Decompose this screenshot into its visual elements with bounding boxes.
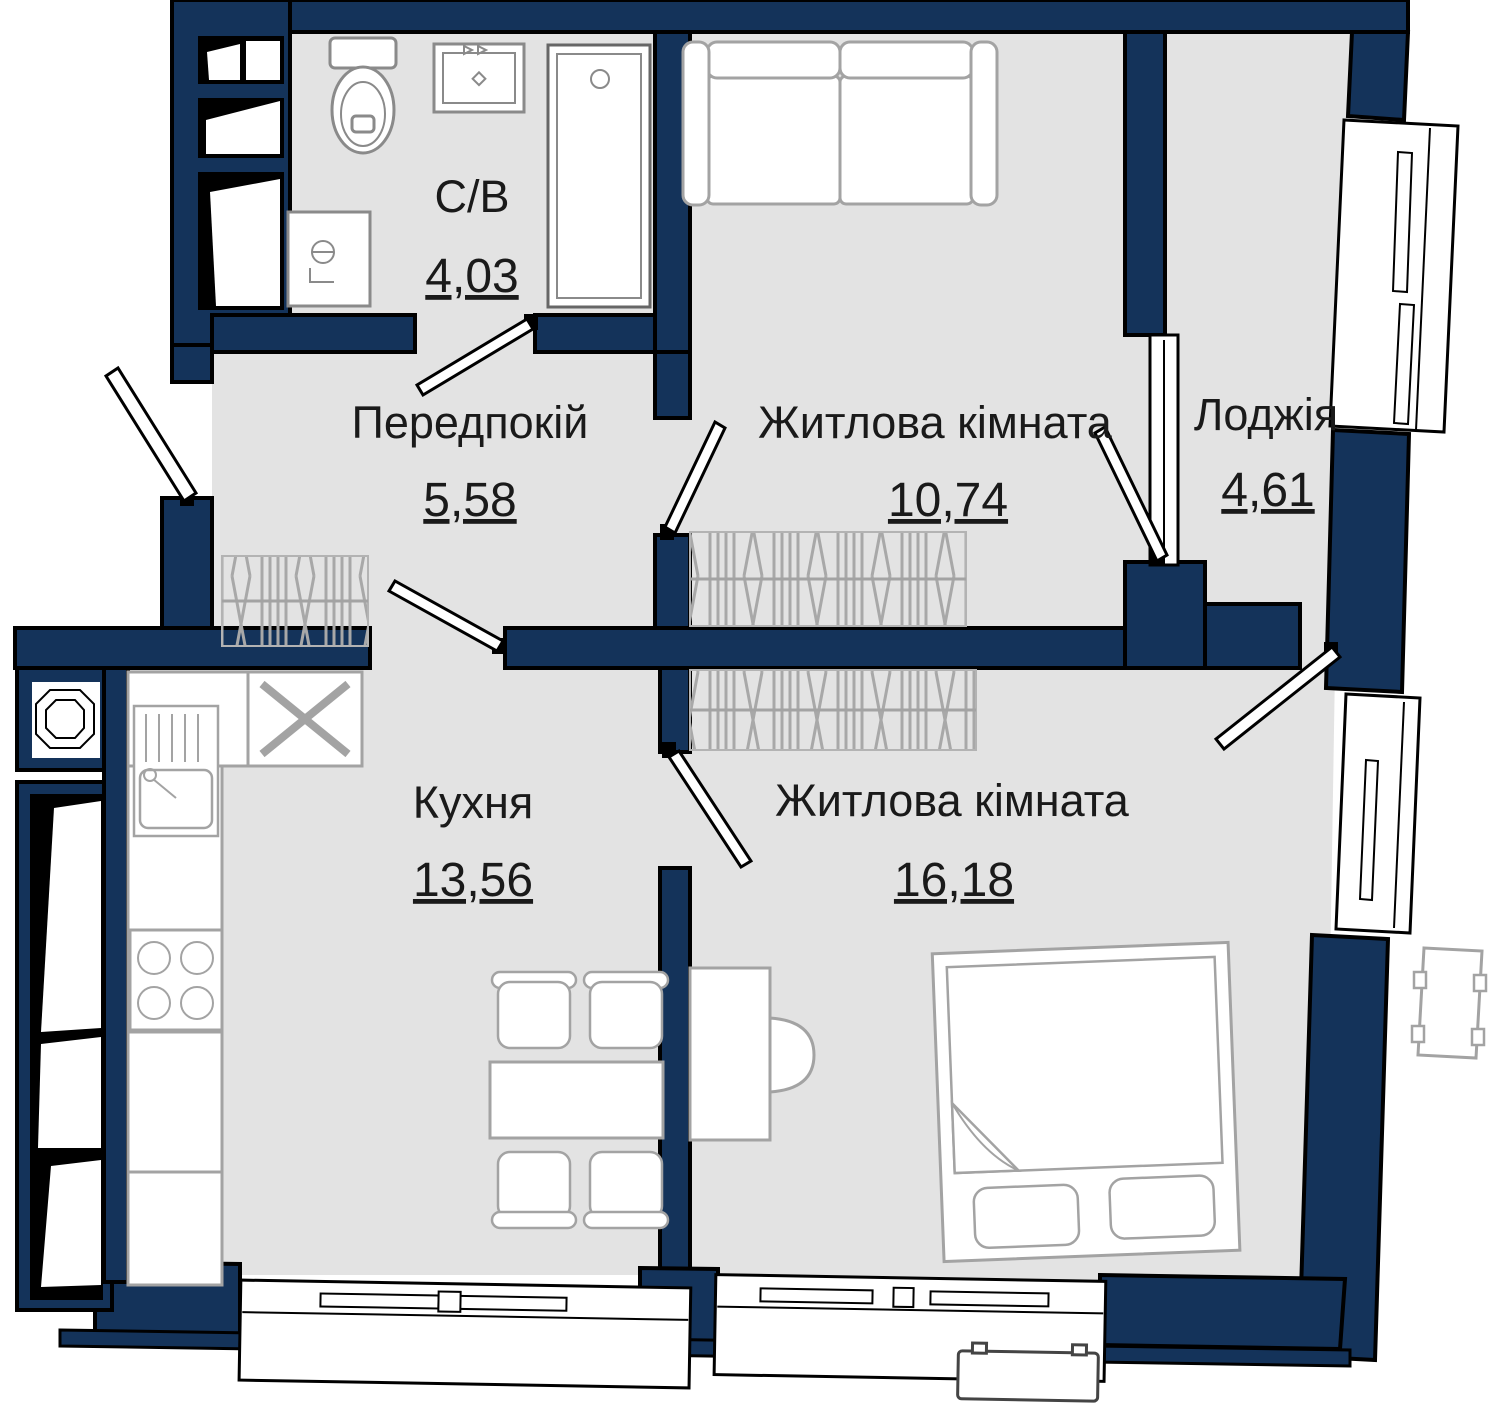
loggia-area: 4,61 <box>1221 464 1314 517</box>
entrance-door-icon <box>106 368 196 506</box>
shower-icon <box>548 45 650 307</box>
living-room-1-area: 10,74 <box>888 474 1008 527</box>
kitchen-left-wall <box>104 668 128 1282</box>
ac-bracket-icon <box>1412 948 1486 1058</box>
kitchen-label: Кухня <box>413 777 533 828</box>
living-room-1-label: Житлова кімната <box>758 397 1113 448</box>
central-wall-right <box>505 628 1205 668</box>
loggia-floor <box>1165 32 1356 604</box>
kitchen-window-icon <box>239 1280 691 1388</box>
toilet-icon <box>330 38 396 153</box>
top-wall <box>172 0 1408 32</box>
bathroom-sink-icon <box>434 44 524 112</box>
living1-wardrobe-icon <box>690 532 966 626</box>
bathroom-label: С/В <box>434 171 509 222</box>
loggia-bottom-wall <box>1205 604 1300 668</box>
loggia-window-icon <box>1330 120 1458 432</box>
floor-plan: С/В 4,03 Передпокій 5,58 Житлова кімната… <box>0 0 1496 1407</box>
ac-unit-icon <box>958 1343 1099 1401</box>
washing-machine-icon <box>288 212 370 306</box>
living1-loggia-wall <box>1125 32 1165 335</box>
hallway-wardrobe-icon <box>222 556 368 646</box>
stove-icon <box>130 930 222 1030</box>
dining-table-icon <box>490 1062 663 1138</box>
sofa-icon <box>683 42 997 205</box>
kitchen-sink-icon <box>134 706 218 836</box>
desk-icon <box>690 968 770 1140</box>
bedroom-wardrobe-icon <box>690 670 976 750</box>
vent-shaft-icon <box>198 36 284 310</box>
hallway-area: 5,58 <box>423 474 516 527</box>
bed-icon <box>932 942 1240 1261</box>
bedroom-side-window-icon <box>1336 694 1420 933</box>
living-room-2-area: 16,18 <box>894 854 1014 907</box>
kitchen-area: 13,56 <box>413 854 533 907</box>
bathroom-area: 4,03 <box>425 250 518 303</box>
loggia-label: Лоджія <box>1194 389 1338 440</box>
hallway-label: Передпокій <box>352 397 589 448</box>
living-room-2-label: Житлова кімната <box>775 775 1130 826</box>
bathroom-wall-left <box>212 315 415 352</box>
bathroom-wall-right <box>535 315 658 352</box>
